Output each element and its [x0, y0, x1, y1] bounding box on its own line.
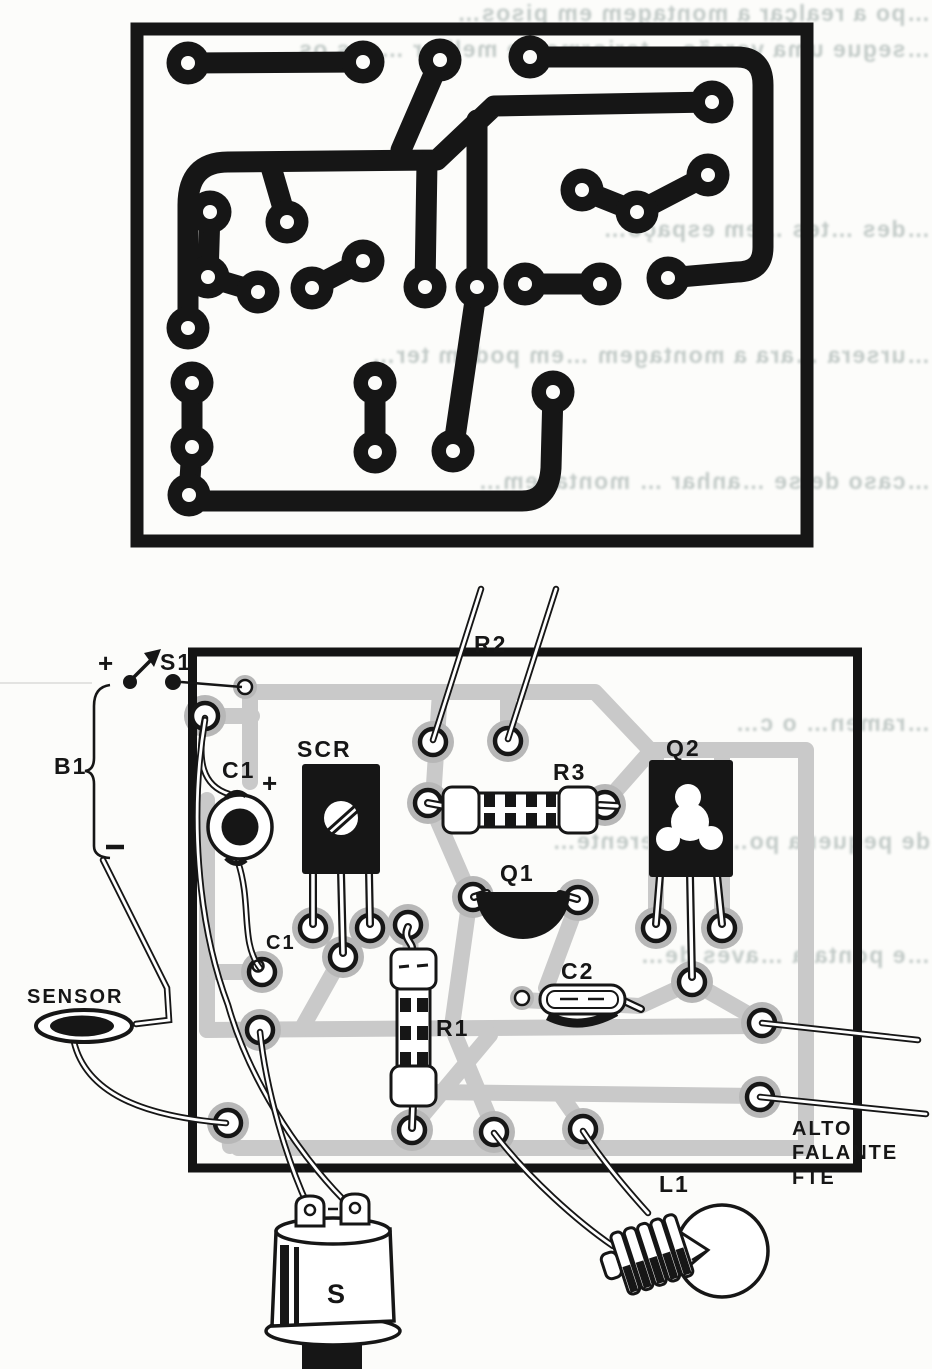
battery-plus-label: + — [98, 648, 113, 678]
c1-center — [222, 809, 259, 846]
lead-core — [341, 872, 343, 953]
pcb-pad-hole — [433, 53, 447, 67]
component-placement-figure: + S1 B1 C1 + SCR R2 R3 Q2 Q1 C2 R1 C1 SE… — [27, 589, 926, 1369]
pcb-pad-hole — [523, 50, 537, 64]
pcb-pad-hole — [356, 55, 370, 69]
wire-core — [760, 1097, 926, 1114]
s-lug-hole — [350, 1203, 360, 1213]
resistor-r3-body — [443, 787, 597, 833]
s-nozzle — [302, 1344, 362, 1369]
r3-cap-left — [443, 787, 479, 833]
l1-bulb-glass — [676, 1205, 768, 1297]
transistor-q2-body — [649, 760, 733, 877]
pcb-pad-hole — [546, 385, 560, 399]
pcb-pad-hole — [305, 281, 319, 295]
board-pad — [515, 991, 529, 1005]
resistor-r2-label: R2 — [474, 631, 507, 657]
wire-core — [433, 589, 481, 740]
r3-cap-right — [559, 787, 597, 833]
switch-s1-label: S1 — [160, 649, 192, 675]
wire-core — [74, 1042, 226, 1123]
s-shade-stripe — [280, 1245, 289, 1325]
pcb-pad-hole — [181, 321, 195, 335]
lamp-l1-label: L1 — [659, 1171, 690, 1197]
resistor-r1-body — [391, 949, 436, 1106]
transistor-q1-body — [476, 892, 570, 939]
l1-screw-base — [594, 1213, 694, 1300]
lamp-l1-body — [594, 1205, 768, 1300]
switch-contact-dot — [165, 674, 181, 690]
speaker-label-line2: FALANTE — [792, 1142, 898, 1164]
pcb-pad-hole — [518, 277, 532, 291]
lead-core — [369, 872, 370, 924]
resistor-r3-label: R3 — [553, 759, 586, 785]
wire-core — [762, 1023, 918, 1040]
pcb-copper-layout-figure — [137, 29, 807, 541]
battery-b1-label: B1 — [54, 753, 87, 779]
r1-dash — [417, 965, 428, 966]
transistor-q2-label: Q2 — [666, 735, 701, 761]
pcb-pad-hole — [418, 280, 432, 294]
pcb-pad-hole — [368, 445, 382, 459]
s-lug-hole — [305, 1205, 315, 1215]
speaker-label-line1: ALTO — [792, 1118, 853, 1140]
r1-dash — [399, 966, 409, 967]
c2-case — [540, 985, 625, 1014]
scr-body — [302, 764, 380, 874]
r1-cap-bottom — [391, 1066, 436, 1106]
speaker-label-line3: FTE — [792, 1167, 836, 1189]
siren-s-label: S — [327, 1279, 345, 1309]
lead-core — [600, 805, 617, 806]
wire-core — [508, 589, 556, 739]
pcb-pad-hole — [201, 270, 215, 284]
c1-board-label: C1 — [266, 932, 296, 954]
sensor-label: SENSOR — [27, 986, 123, 1008]
scr-label: SCR — [297, 736, 352, 762]
pcb-pad-hole — [185, 376, 199, 390]
pcb-pad-hole — [575, 183, 589, 197]
capacitor-c2-label: C2 — [561, 958, 594, 984]
capacitor-c2-body — [540, 985, 625, 1023]
pcb-pad-hole — [181, 56, 195, 70]
s-top — [276, 1218, 390, 1244]
pcb-pad-hole — [280, 215, 294, 229]
pcb-trace — [188, 62, 363, 63]
pcb-pad-hole — [701, 168, 715, 182]
pcb-pad-hole — [446, 444, 460, 458]
pcb-pad-hole — [470, 280, 484, 294]
resistor-r1-label: R1 — [436, 1015, 469, 1041]
transistor-q1-label: Q1 — [500, 860, 535, 886]
copper-trace — [207, 1026, 760, 1030]
pcb-pad-hole — [185, 440, 199, 454]
diagram-artwork: + S1 B1 C1 + SCR R2 R3 Q2 Q1 C2 R1 C1 SE… — [0, 0, 932, 1369]
pcb-pad-hole — [368, 376, 382, 390]
lead-core — [412, 1104, 413, 1128]
battery-brace — [85, 685, 110, 858]
q2-lobe — [675, 784, 701, 810]
switch-pivot-dot — [123, 675, 137, 689]
capacitor-c1-label: C1 — [222, 757, 255, 783]
pcb-pad-hole — [251, 285, 265, 299]
pcb-pad-hole — [630, 205, 644, 219]
r1-cap-top — [391, 949, 436, 989]
scanned-page: { "labels": { "s1": "S1", "b1": "B1", "p… — [0, 0, 932, 1369]
pcb-pad-hole — [203, 205, 217, 219]
c1-polarity-label: + — [262, 768, 277, 798]
sensor-inner — [50, 1016, 114, 1037]
lead-core — [690, 875, 692, 977]
sensor-symbol — [36, 1010, 132, 1042]
q2-lobe — [656, 827, 680, 851]
pcb-pad-hole — [661, 271, 675, 285]
pcb-pad-hole — [705, 95, 719, 109]
pcb-pad-hole — [182, 488, 196, 502]
pcb-pad-hole — [356, 254, 370, 268]
pcb-pad-hole — [593, 277, 607, 291]
s-shade-stripe — [294, 1247, 299, 1325]
q2-lobe — [699, 826, 723, 850]
